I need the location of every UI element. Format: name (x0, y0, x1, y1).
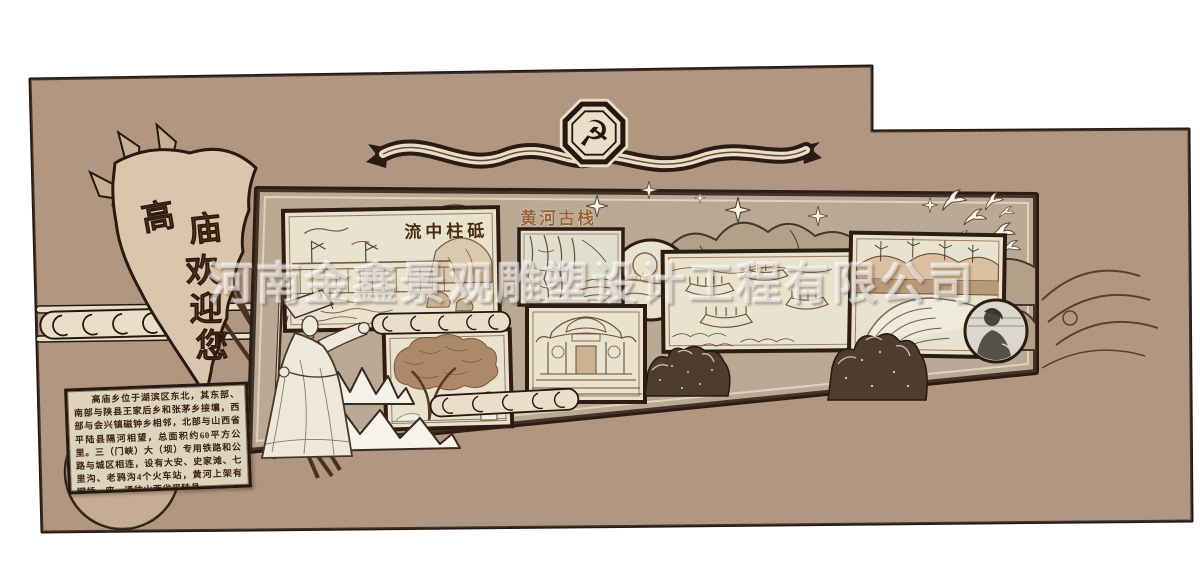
flag-char: 庙 (187, 209, 224, 249)
plank-road-title: 黄河古栈 (520, 208, 596, 228)
hammer-sickle-icon: ☭ (578, 114, 610, 154)
cultural-wall-design: 高 庙 欢 迎 您 (0, 0, 1200, 567)
dam-caption: 流中柱砥 (404, 220, 488, 241)
picture-temple (527, 306, 645, 402)
intro-text-box: 高庙乡位于湖滨区东北，其东部、南部与陕县王家后乡和张茅乡接壤，西部与会兴镇磁钟乡… (64, 382, 252, 495)
photo-portrait (965, 300, 1027, 362)
cloud-scroll-mid (372, 312, 510, 334)
flag-char: 欢 (184, 252, 221, 291)
picture-boats (663, 250, 860, 352)
flag-char: 您 (196, 328, 229, 365)
intro-text: 高庙乡位于湖滨区东北，其东部、南部与陕县王家后乡和张茅乡接壤，西部与会兴镇磁钟乡… (73, 388, 243, 495)
party-emblem: ☭ (560, 99, 628, 167)
flag-char: 高 (139, 197, 178, 239)
flag-char: 迎 (190, 290, 223, 328)
